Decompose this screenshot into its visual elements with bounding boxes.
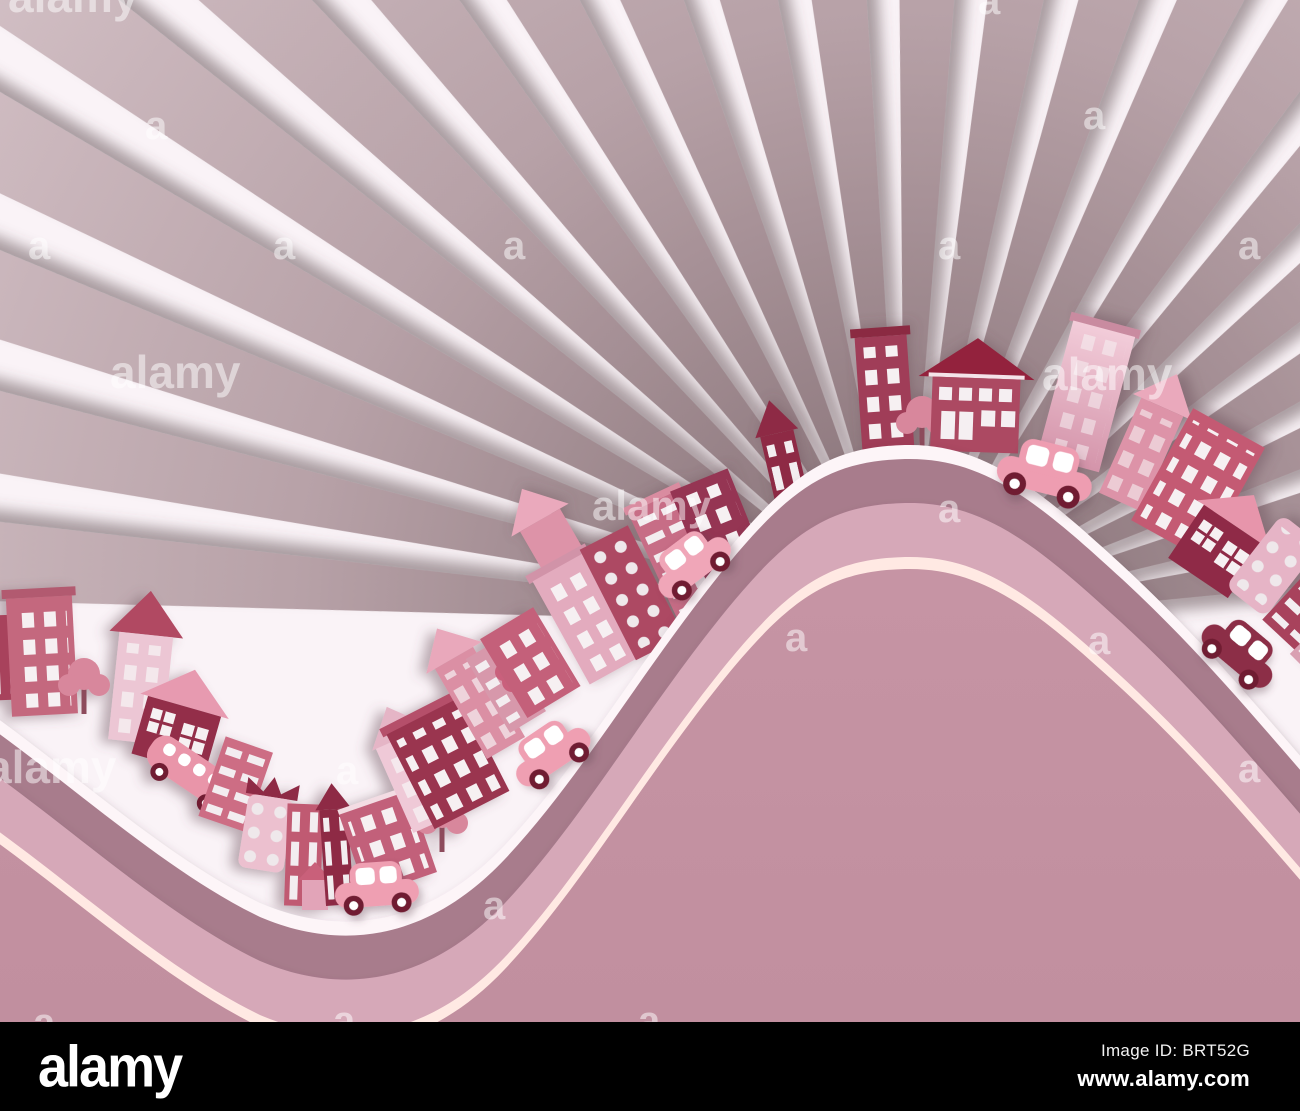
watermark-letter: a	[638, 999, 661, 1022]
alamy-logo: alamy	[38, 1037, 181, 1095]
image-meta: Image ID: BRT52G www.alamy.com	[1077, 1041, 1250, 1092]
watermark-letter: a	[273, 224, 296, 268]
building-tower	[1, 586, 82, 717]
alamy-footer-bar: alamy Image ID: BRT52G www.alamy.com	[0, 1022, 1300, 1111]
watermark-letter: a	[938, 487, 961, 531]
watermark-word: alamy	[0, 741, 117, 793]
watermark-word: alamy	[110, 346, 241, 398]
watermark-letter: a	[503, 224, 526, 268]
cityscape-illustration: alamy alamy alamy alamy alamy a a a a a …	[0, 0, 1300, 1022]
watermark-word: alamy	[592, 482, 712, 529]
watermark-letter: a	[145, 104, 168, 148]
watermark-letter: a	[33, 1001, 56, 1022]
watermark-word: alamy	[1042, 348, 1173, 400]
watermark-letter: a	[1083, 94, 1106, 138]
watermark-letter: a	[28, 224, 51, 268]
stock-image-page: alamy alamy alamy alamy alamy a a a a a …	[0, 0, 1300, 1111]
watermark-letter: a	[785, 616, 808, 660]
watermark-letter: a	[938, 224, 961, 268]
watermark-letter: a	[336, 749, 359, 793]
image-id-text: Image ID: BRT52G	[1101, 1041, 1250, 1061]
alamy-url-text: www.alamy.com	[1077, 1066, 1250, 1092]
watermark-word: alamy	[8, 0, 139, 22]
watermark-letter: a	[333, 999, 356, 1022]
watermark-letter: a	[978, 0, 1001, 23]
watermark-letter: a	[1238, 224, 1261, 268]
watermark-letter: a	[1088, 619, 1111, 663]
watermark-letter: a	[483, 884, 506, 928]
watermark-letter: a	[1238, 747, 1261, 791]
